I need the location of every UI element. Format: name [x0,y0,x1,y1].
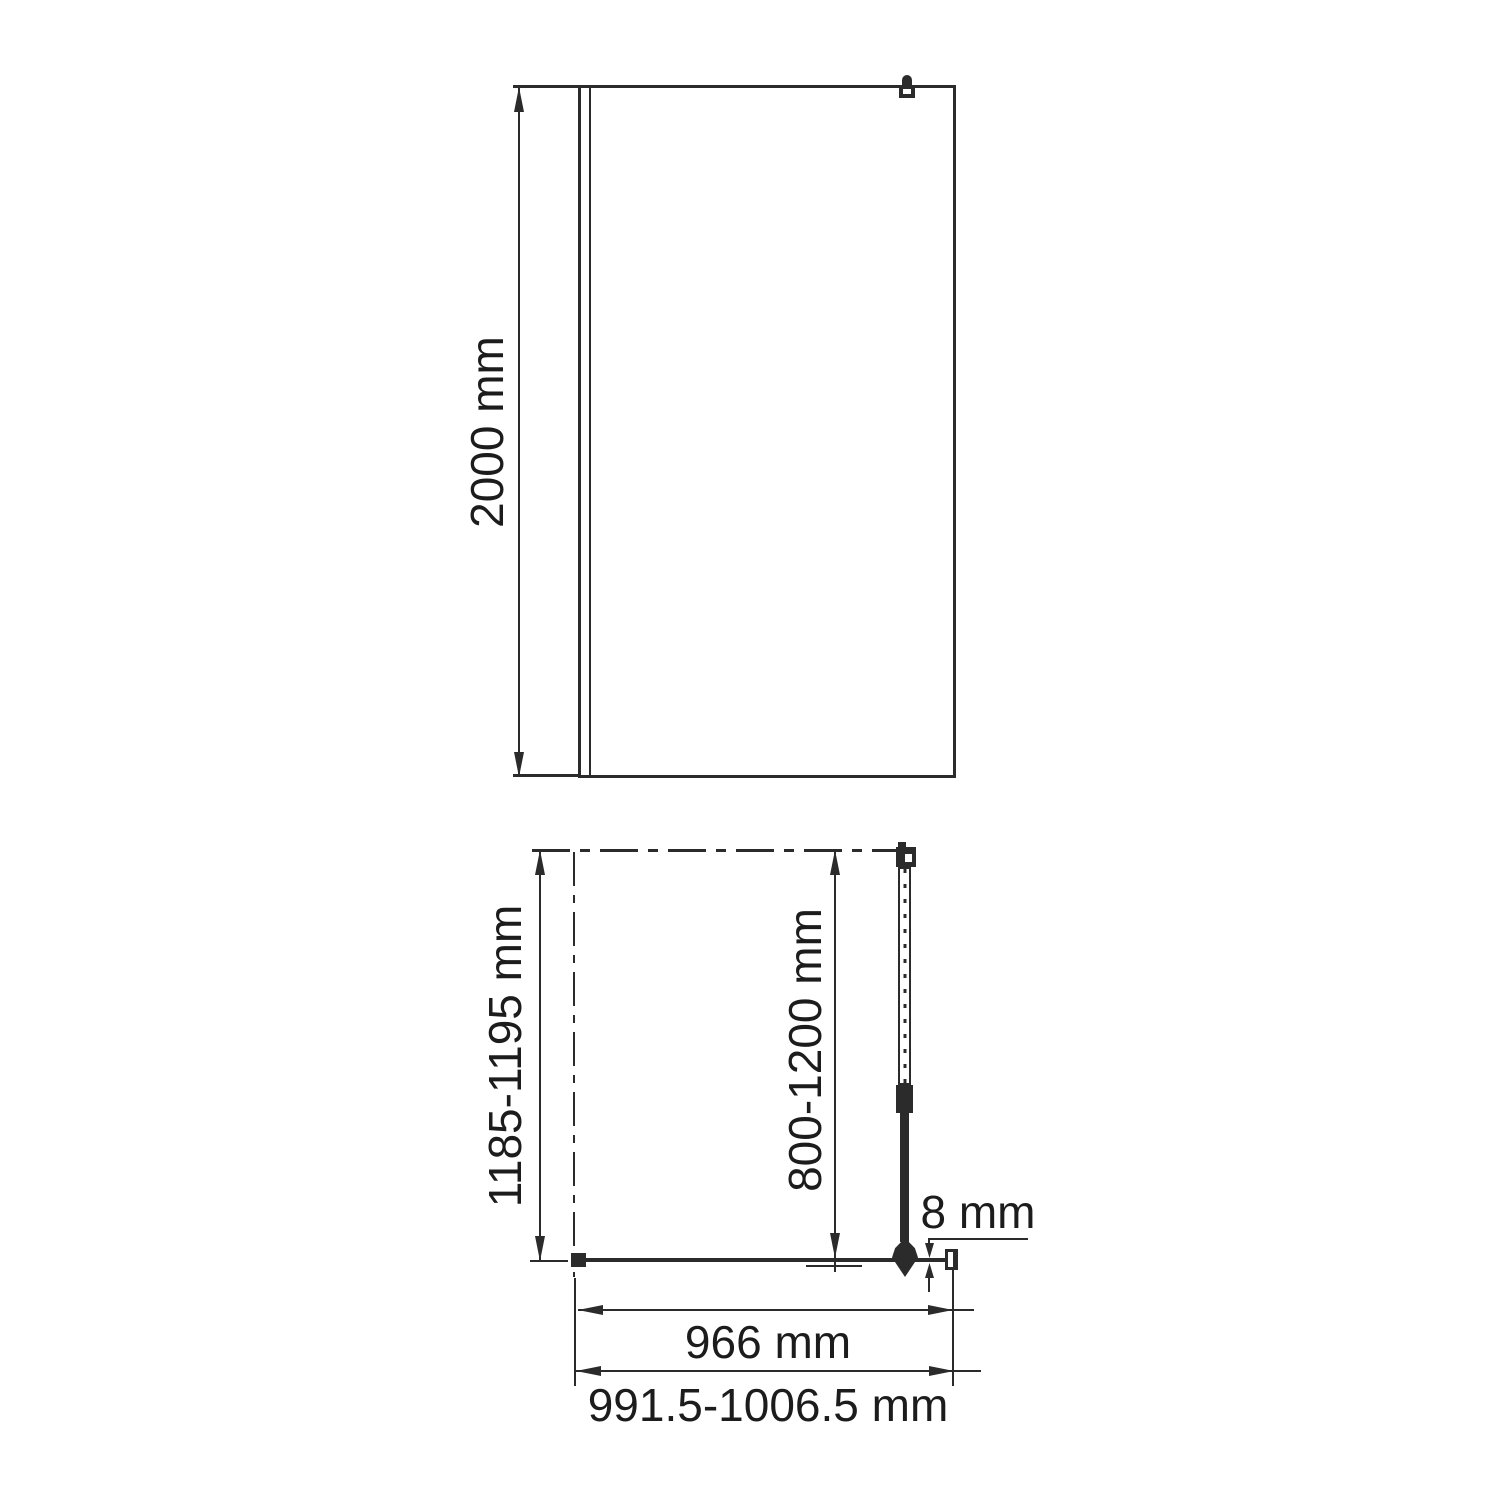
arrowhead-right-icon [928,1305,953,1315]
arrowhead-up-icon [830,850,840,875]
glass-width-label: 966 mm [685,1319,851,1365]
arrowhead-down-icon [830,1233,840,1258]
extension-line-right [952,1268,954,1386]
support-range-tick [806,1265,862,1267]
glass-width-dimension-line [578,1309,974,1311]
glass-panel-plan [581,1258,949,1262]
support-bracket-front-slot [903,89,911,94]
arrowhead-right-icon [929,1366,954,1376]
support-bar-sleeve [896,1085,913,1113]
support-range-dimension-line [834,850,836,1272]
extension-line-top [513,85,578,88]
arrowhead-down-icon [925,1243,934,1258]
support-bar-rod [900,1112,909,1242]
glass-panel-front [578,85,956,778]
support-bar-telescopic-tube [898,867,911,1085]
extension-line-bottom [513,774,578,777]
tube-knurl-ticks [903,869,906,1083]
technical-drawing-canvas: 2000 mm 1185-1195 mm 800-1200 mm [0,0,1500,1500]
wall-side-centerline [573,852,575,1277]
support-bar-range-label: 800-1200 mm [782,908,828,1192]
front-view-height-label: 2000 mm [464,336,510,528]
depth-dimension-line [539,850,541,1261]
overall-width-label: 991.5-1006.5 mm [588,1382,949,1428]
arrowhead-left-icon [576,1366,601,1376]
glass-end-clamp-back [953,1249,958,1270]
glass-thickness-label: 8 mm [921,1189,1036,1235]
wall-profile-line [589,88,591,775]
plan-depth-label: 1185-1195 mm [482,905,528,1208]
arrowhead-left-icon [578,1305,603,1315]
height-dimension-line [518,87,520,777]
support-bar-bracket-slot [905,854,912,862]
thickness-leader-tail [928,1276,930,1292]
overall-width-dimension-line [576,1370,981,1372]
wall-centerline [532,849,912,852]
depth-dimension-tick [530,1260,568,1262]
thickness-leader-line [928,1238,1028,1240]
arrowhead-down-icon [535,1236,545,1261]
arrowhead-up-icon [535,850,545,875]
arrowhead-up-icon [514,87,524,112]
wall-profile-plan-block [571,1253,586,1267]
